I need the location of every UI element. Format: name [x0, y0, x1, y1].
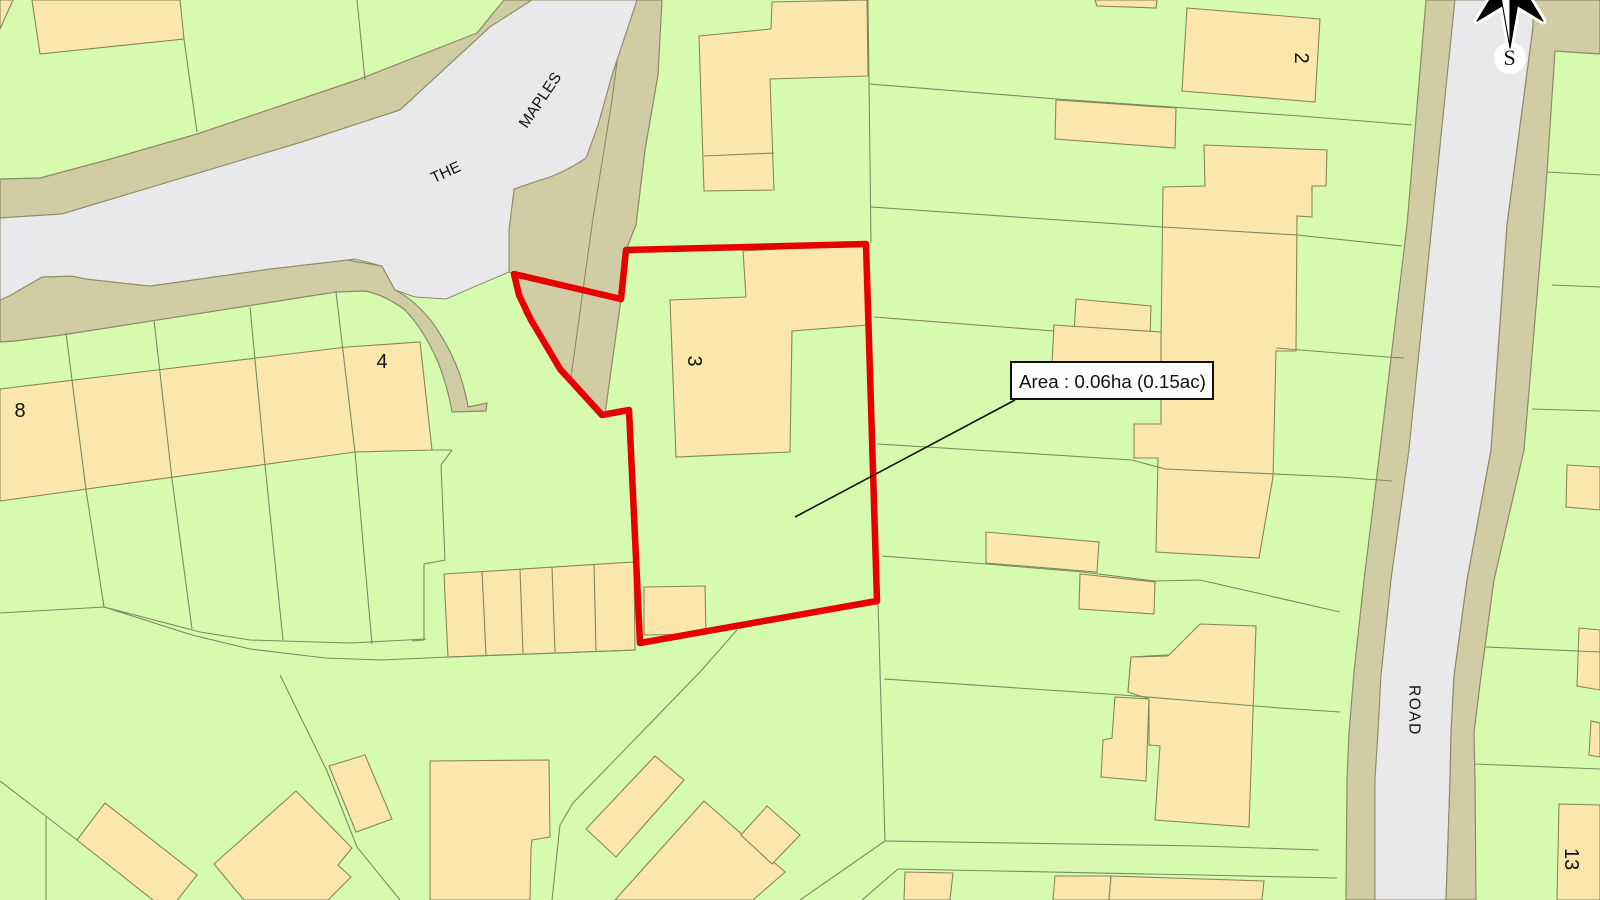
svg-text:3: 3 — [683, 356, 705, 367]
svg-text:4: 4 — [377, 351, 388, 373]
svg-text:Area : 0.06ha (0.15ac): Area : 0.06ha (0.15ac) — [1019, 371, 1206, 392]
svg-text:8: 8 — [15, 400, 26, 422]
svg-text:2: 2 — [1290, 53, 1312, 64]
svg-text:ROAD: ROAD — [1406, 685, 1423, 736]
svg-text:13: 13 — [1560, 848, 1582, 870]
svg-text:S: S — [1504, 45, 1516, 70]
